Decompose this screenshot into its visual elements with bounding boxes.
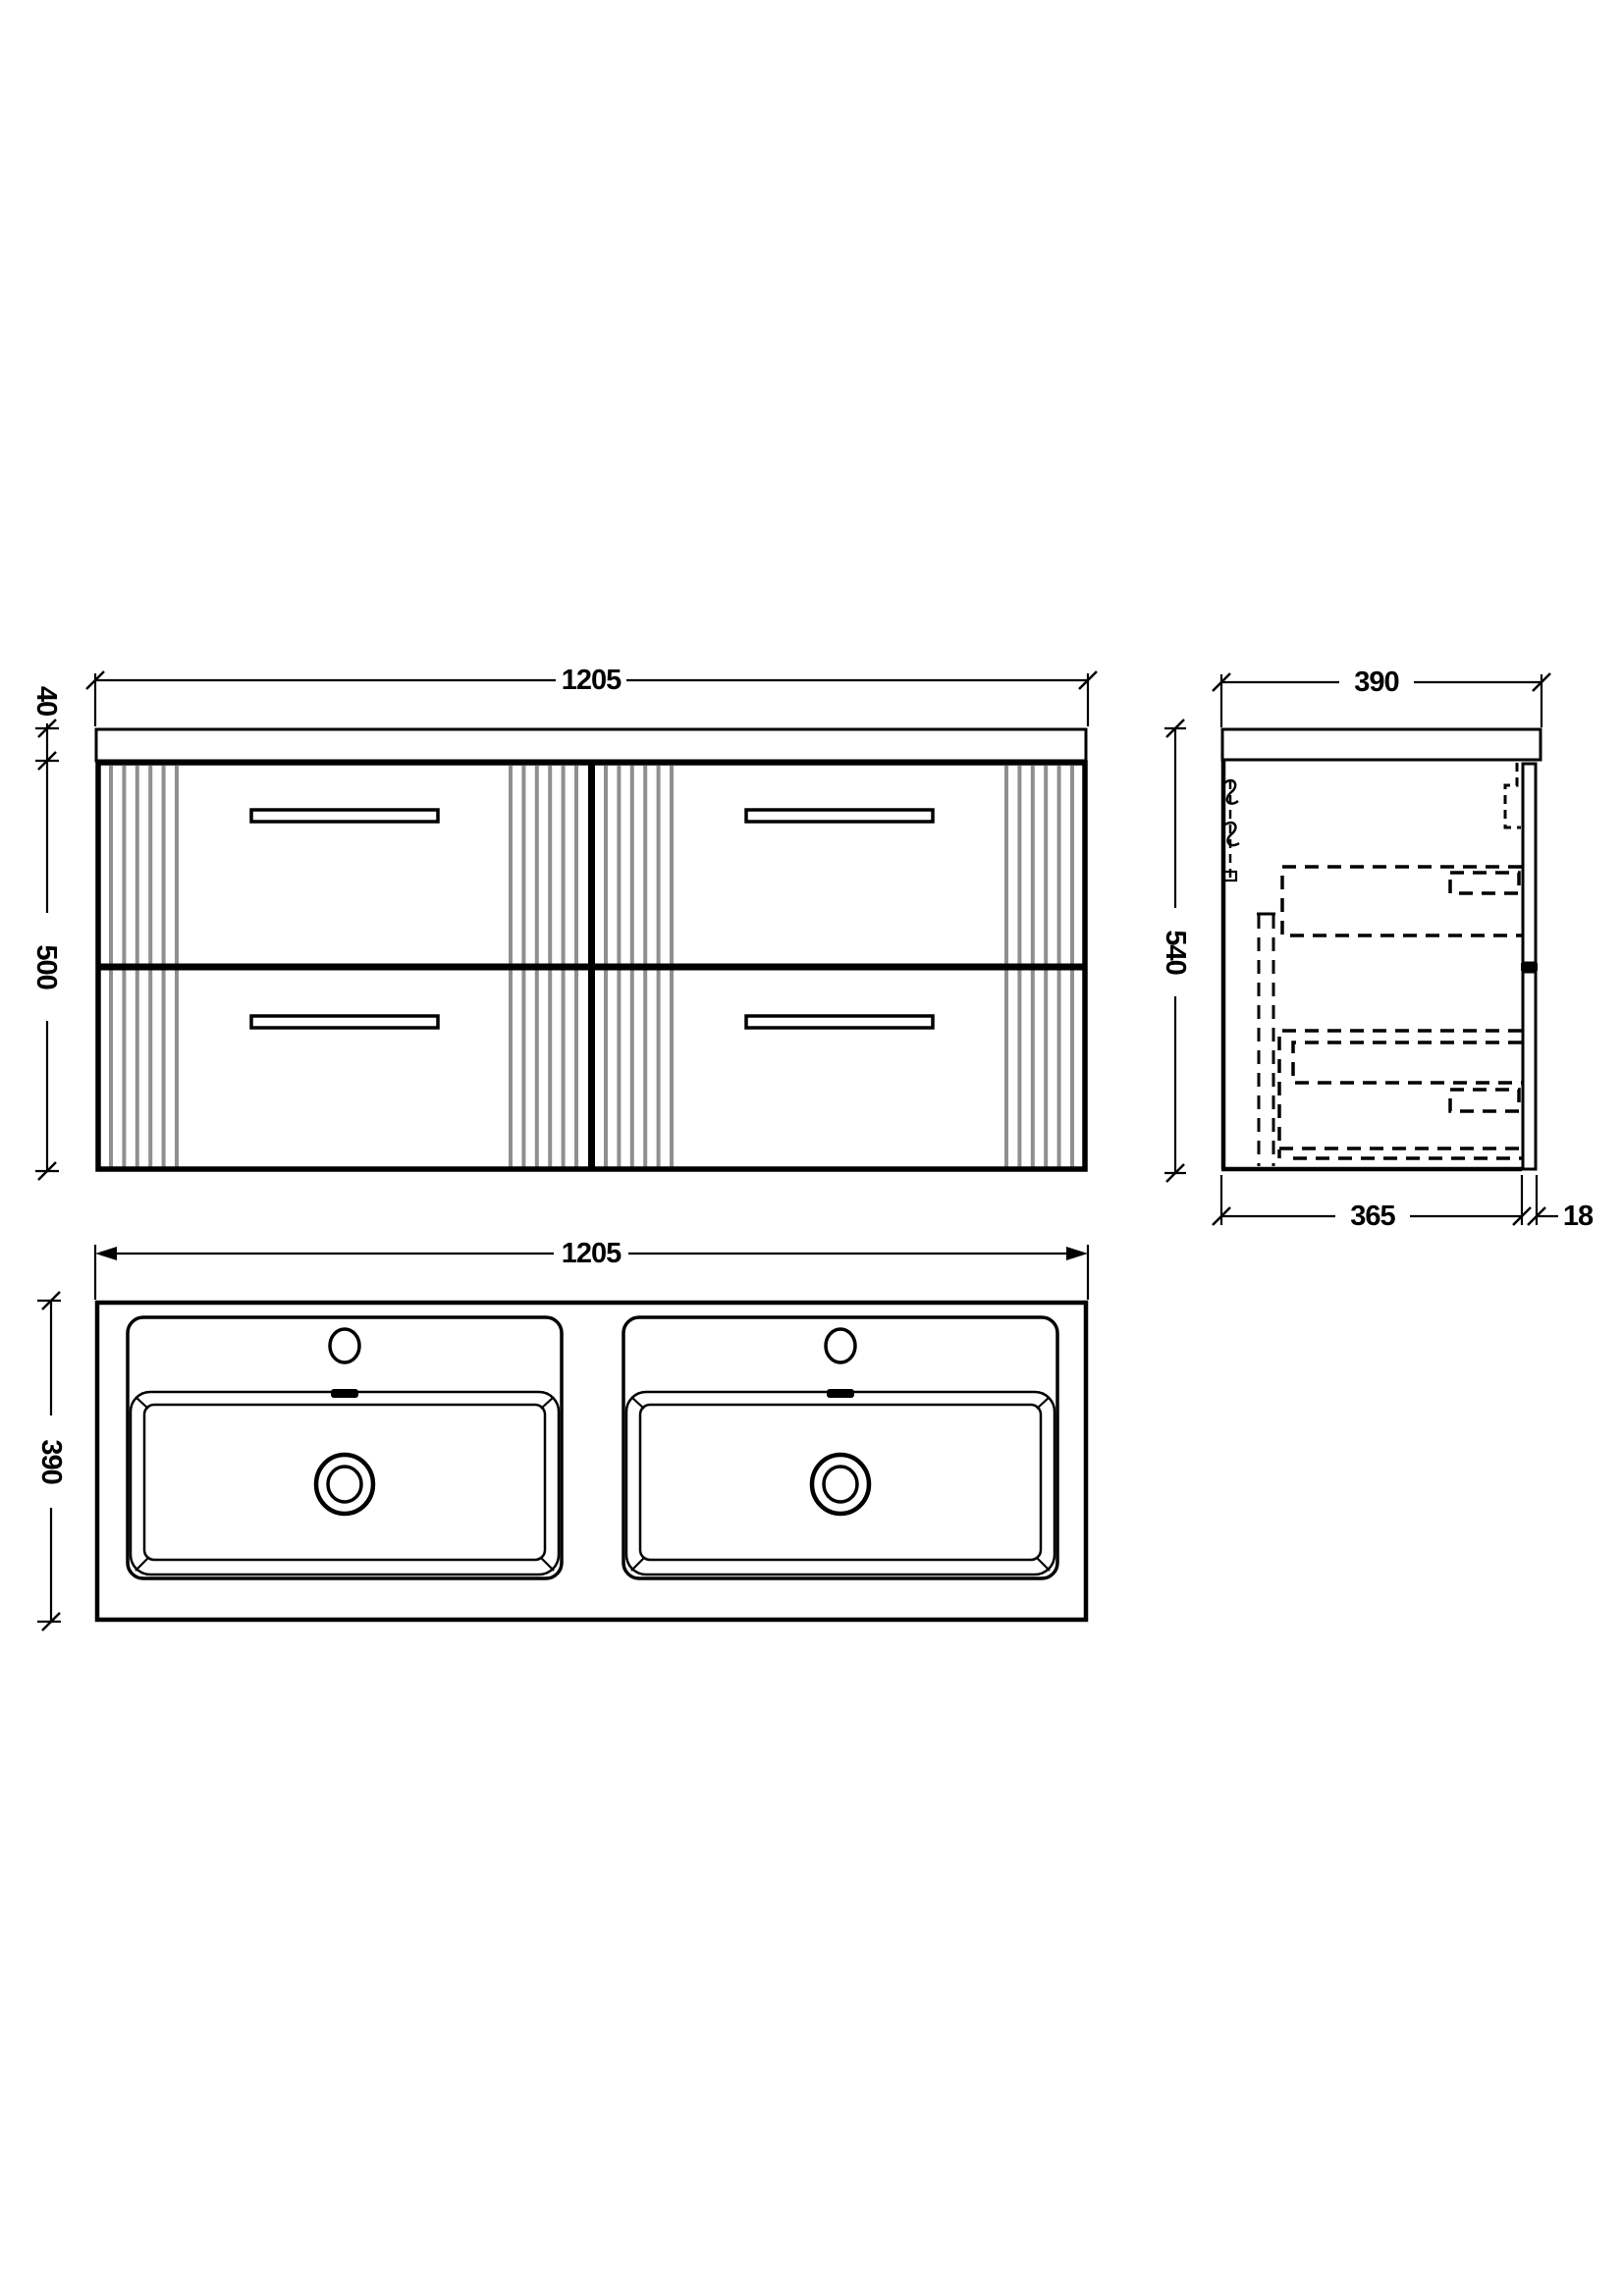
dim-label-side-depth: 390 (1354, 667, 1398, 698)
side-drawer-front-bottom (1523, 972, 1536, 1169)
side-upper-drawer-dashed (1282, 867, 1522, 935)
handle-top-left (251, 810, 438, 822)
dim-label-plan-depth: 390 (35, 1439, 67, 1483)
dim-label-carcass-depth: 365 (1350, 1201, 1395, 1232)
handle-top-right (746, 810, 933, 822)
basin-right-waste-inner (824, 1467, 857, 1502)
side-countertop (1222, 729, 1541, 760)
dim-side-bottom: 365 18 (1213, 1175, 1594, 1232)
dim-side-height: 540 (1160, 720, 1191, 1182)
basin-left-overflow (331, 1389, 358, 1398)
front-view: 1205 40 500 (30, 665, 1097, 1180)
basin-right-corner-ticks (631, 1397, 1050, 1571)
vanity-technical-drawing: 1205 40 500 (0, 0, 1623, 2296)
basin-right-waste-outer (812, 1455, 869, 1514)
dim-label-cabinet-height: 500 (30, 944, 62, 988)
plan-basin-left (128, 1317, 562, 1578)
dim-front-width: 1205 (86, 665, 1097, 726)
basin-left-bowl-outer-rim (131, 1392, 559, 1575)
side-internal-upright (1257, 914, 1275, 1166)
dim-front-heights: 40 500 (30, 686, 62, 1180)
basin-left-bowl-inner-rim (144, 1405, 545, 1560)
dim-arrow-right (1066, 1247, 1088, 1260)
dim-label-plan-width: 1205 (562, 1238, 622, 1269)
dim-side-depth: 390 (1213, 667, 1550, 727)
front-countertop (96, 729, 1086, 761)
handle-bottom-left (251, 1016, 438, 1028)
basin-left-tap-hole (330, 1329, 359, 1362)
dim-arrow-left (95, 1247, 117, 1260)
basin-right-outline (623, 1317, 1057, 1578)
dim-label-front-thickness: 18 (1563, 1201, 1594, 1232)
side-lower-drawer-dashed (1279, 1031, 1522, 1158)
plan-countertop-outline (97, 1303, 1086, 1620)
dim-label-side-height: 540 (1160, 930, 1191, 974)
plan-basin-right (623, 1317, 1057, 1578)
plan-view: 1205 390 (35, 1238, 1088, 1630)
basin-right-tap-hole (826, 1329, 855, 1362)
basin-left-outline (128, 1317, 562, 1578)
side-drawer-front-top (1523, 764, 1536, 963)
basin-right-overflow (827, 1389, 854, 1398)
dim-label-counter-thickness: 40 (30, 686, 62, 716)
basin-left-waste-inner (328, 1467, 361, 1502)
basin-right-bowl-inner-rim (640, 1405, 1041, 1560)
basin-left-corner-ticks (135, 1397, 554, 1571)
handle-bottom-right (746, 1016, 933, 1028)
basin-right-bowl-outer-rim (626, 1392, 1055, 1575)
side-upper-drawer-runner (1450, 873, 1519, 893)
dim-label-front-width: 1205 (562, 665, 622, 696)
drawing-page: 1205 40 500 (0, 0, 1623, 2296)
side-drawer-front-gap (1521, 963, 1538, 971)
side-view: 390 540 365 18 (1160, 667, 1594, 1232)
basin-left-waste-outer (316, 1455, 373, 1514)
dim-plan-width: 1205 (95, 1238, 1088, 1300)
side-wall-bracket (1223, 780, 1239, 883)
side-front-notch (1505, 763, 1521, 828)
dim-plan-depth: 390 (35, 1292, 67, 1630)
side-lower-drawer-runner (1450, 1090, 1519, 1111)
